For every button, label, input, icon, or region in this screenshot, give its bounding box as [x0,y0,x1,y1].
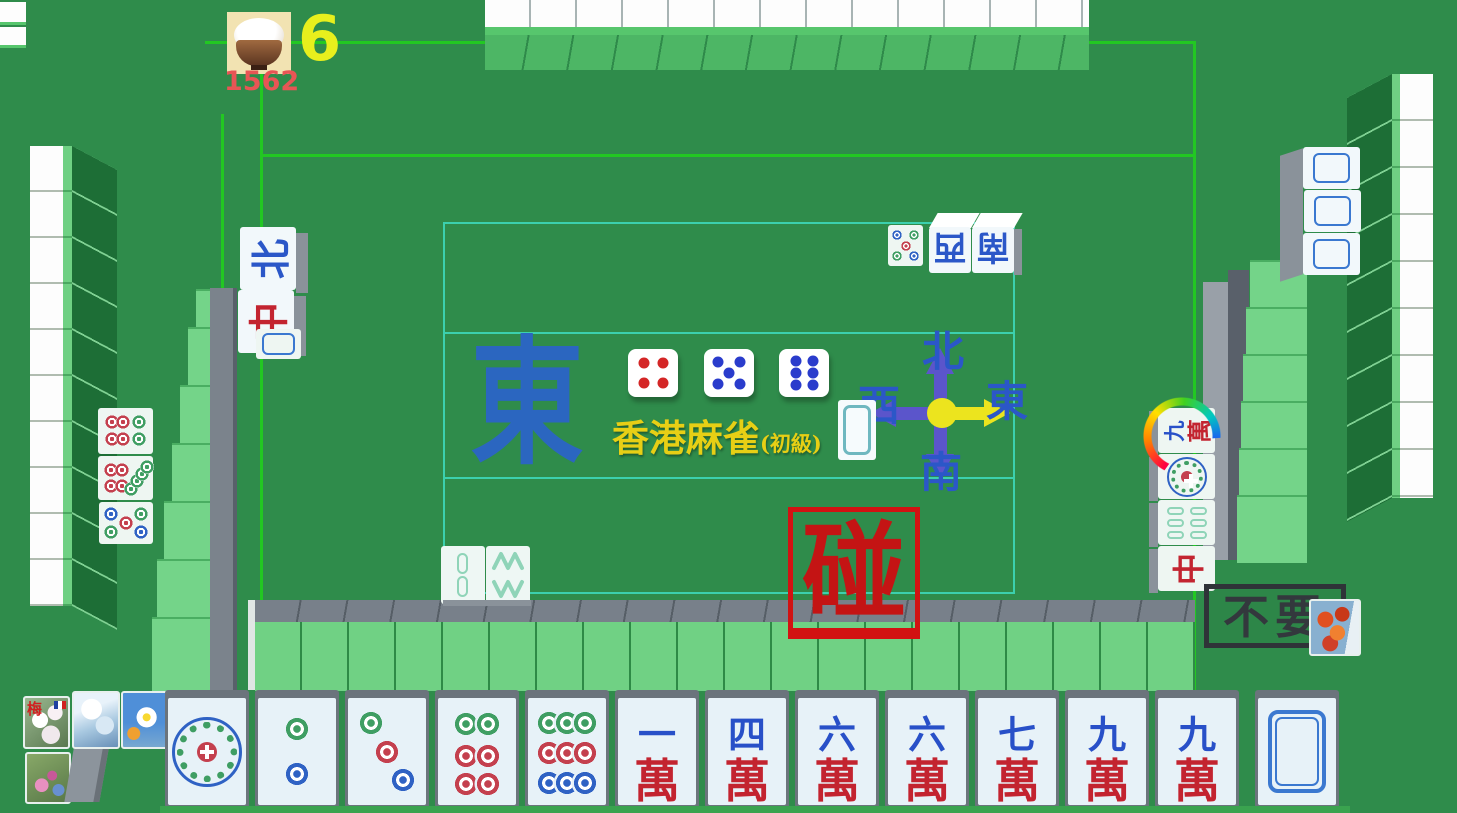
dot-pip [140,460,154,474]
die-pip [807,379,818,390]
table-line [1193,41,1196,691]
bamboo-stick [1190,531,1207,539]
dot-pip [909,230,919,240]
tile-back [157,559,210,619]
dot-pip [132,432,146,446]
dot-pip [119,516,133,530]
bamboo-stick [457,576,468,597]
die-pip [807,356,818,367]
dot-pip [134,507,148,521]
wall-count: 6 [298,2,341,75]
tile-face [168,698,246,805]
die-pip [713,378,724,389]
1-dot-medallion [1167,457,1207,497]
dot-pip [901,241,911,251]
player-hand: 一萬四萬六萬六萬七萬九萬九萬 [165,690,1345,808]
bottom-wall-face [255,622,1195,691]
die-2 [704,349,754,397]
hand-tile-9-dots[interactable] [525,690,609,808]
right-wall-tops [1400,74,1433,498]
tile-face [528,698,606,805]
red-dragon-char: 中 [1164,552,1210,584]
dot-pip [132,415,146,429]
tile-back [1237,495,1307,563]
die-pip [713,357,724,368]
dot-pip [892,251,902,261]
corner-wall-tiles [0,2,26,25]
discard-tile-5-dots-small [888,225,923,266]
left-player-hand-side [210,288,233,692]
die-pip [724,368,735,379]
tile-back [172,443,210,503]
right-wall-face [1347,74,1392,522]
tile-back [196,289,210,329]
die-pip [735,378,746,389]
tile-face: 六萬 [888,698,966,805]
left-player-hand-edge [233,288,237,692]
dot-pip [909,251,919,261]
1-dot-medallion [172,717,242,787]
die-pip [790,356,801,367]
white-dragon-frame [1313,153,1350,183]
tile-side [443,600,531,606]
die-1 [628,349,678,397]
hand-tile-四-wan[interactable]: 四萬 [705,690,789,808]
tile-back [1246,307,1307,356]
left-wall-face [72,146,117,630]
die-pip [807,368,818,379]
dot-pip [115,463,129,477]
white-dragon-frame [1314,196,1351,226]
flower-tile-daisy [121,691,168,749]
tile-face: 九萬 [1158,698,1236,805]
discard-tile-north-wind: 北 [240,227,296,290]
hand-tile-六-wan[interactable]: 六萬 [795,690,879,808]
tile-face [258,698,336,805]
hand-tile-2-dots[interactable] [255,690,339,808]
bamboo-stick [1190,507,1207,515]
hand-shelf [160,806,1350,813]
tile-face [1258,698,1336,805]
hand-tile-6-dots[interactable] [435,690,519,808]
dot-pip [116,415,130,429]
hand-tile-1-dots[interactable] [165,690,249,808]
tile-face [438,698,516,805]
top-wall-face [485,35,1089,70]
tile-side [1014,229,1022,275]
compass-east-label: 東 [986,381,1028,423]
tile-back [1239,448,1307,497]
wan-suit: 萬 [978,745,1056,811]
game-title-suffix: (初級) [760,431,822,456]
dot-pip [284,716,311,743]
die-pip [657,358,668,369]
die-pip [657,377,668,388]
tile-face: 七萬 [978,698,1056,805]
tile-face: 西 [929,227,971,273]
hand-tile-七-wan[interactable]: 七萬 [975,690,1059,808]
tile-back [180,385,210,445]
dot-pip [134,525,148,539]
compass-south-label: 南 [920,452,962,494]
flower-tile-autumn [1309,599,1361,656]
discard-tile-6-bamboo [1158,500,1215,545]
hand-tile-六-wan[interactable]: 六萬 [885,690,969,808]
dot-pip [571,739,598,766]
tile-back [188,327,210,387]
white-dragon-frame [1313,239,1350,269]
hand-tile-一-wan[interactable]: 一萬 [615,690,699,808]
tile-back [1241,401,1307,450]
die-pip [790,379,801,390]
tile-back [152,617,210,694]
hand-tile-九-wan[interactable]: 九萬 [1065,690,1149,808]
discard-tile-2-bamboo [441,546,485,604]
table-line [260,154,1196,157]
meld-tile-white-dragon [1304,190,1361,232]
wan-suit: 萬 [618,745,696,811]
corner-wall-tiles [0,27,26,48]
die-3 [779,349,829,397]
flower-tile-spring [25,752,71,804]
wan-suit: 萬 [1158,745,1236,811]
meld-side [1280,148,1303,281]
wan-suit: 萬 [798,745,876,811]
dot-pip [474,742,501,769]
south-wind-char: 南 [977,226,1010,274]
bottom-wall-tops [255,600,1195,622]
flower-tile-plum: 梅 [23,696,70,749]
discard-tile-white-dragon [256,329,301,359]
west-wind-char: 西 [934,226,967,274]
bamboo-stick [1167,507,1184,515]
dot-pip [892,230,902,240]
white-dragon-frame [1268,710,1326,793]
tile-face: 六萬 [798,698,876,805]
tile-back [1243,354,1307,403]
flower-tile-winter [72,691,120,749]
tile-face: 一萬 [618,698,696,805]
die-pip [735,357,746,368]
dot-pip [104,525,118,539]
wan-suit: 萬 [888,745,966,811]
tile-back [164,501,210,561]
discard-tile-8-bamboo [486,546,530,604]
compass-north-label: 北 [922,331,964,373]
north-wind-char: 北 [239,239,297,279]
left-wall-band [63,146,72,606]
mahjong-table: 6 1562 北 中 西 南 九 萬 [0,0,1457,813]
dot-pip [116,432,130,446]
rice-bowl-icon [227,12,291,74]
player-score: 1562 [224,66,296,97]
top-wall-tops [485,0,1089,27]
right-wall-band [1392,74,1400,498]
dot-pip [474,770,501,797]
bamboo-stick [457,553,468,574]
hand-tile-3-dots[interactable] [345,690,429,808]
white-dragon-frame [843,405,871,455]
top-wall [485,0,1089,70]
tile-side [296,233,308,293]
white-dragon-frame [262,333,295,355]
pong-button[interactable]: 碰 [788,507,920,639]
tile-face: 九萬 [1068,698,1146,805]
hand-tile-white-dragon[interactable] [1255,690,1339,808]
discard-tile-5-dots [99,502,153,544]
game-title-text: 香港麻雀 [612,416,760,460]
bamboo-stick [1167,519,1184,527]
bamboo-stick [1167,531,1184,539]
dot-pip [389,767,416,794]
die-pip [638,358,649,369]
wan-suit: 萬 [1068,745,1146,811]
8-bamboo-glyph [486,546,530,604]
hand-tile-九-wan[interactable]: 九萬 [1155,690,1239,808]
die-pip [638,377,649,388]
dot-pip [374,738,401,765]
wan-suit: 萬 [708,745,786,811]
dot-pip [104,507,118,521]
discard-tile-6-dots [98,408,153,454]
tile-side [1149,503,1158,547]
dot-pip [474,710,501,737]
left-wall-tops [30,146,63,606]
dot-pip [358,709,385,736]
die-pip [790,368,801,379]
tile-face: 四萬 [708,698,786,805]
round-wind-indicator: 東 [470,334,583,472]
meld-tile-white-dragon [1303,233,1360,275]
discard-tile-8-dots [98,456,153,500]
tile-face [348,698,426,805]
flower-flag [54,701,66,709]
tile-side [1149,549,1158,593]
dot-pip [284,760,311,787]
bamboo-stick [1190,519,1207,527]
flower-label: 梅 [27,698,42,719]
meld-tile-white-dragon [1303,147,1360,189]
game-title: 香港麻雀(初級) [612,408,822,462]
tile-face: 南 [972,227,1014,273]
discard-tile-white-dragon-center [838,400,876,460]
dot-pip [571,769,598,796]
bowl [236,40,282,66]
dot-pip [571,709,598,736]
top-wall-band [485,27,1089,35]
